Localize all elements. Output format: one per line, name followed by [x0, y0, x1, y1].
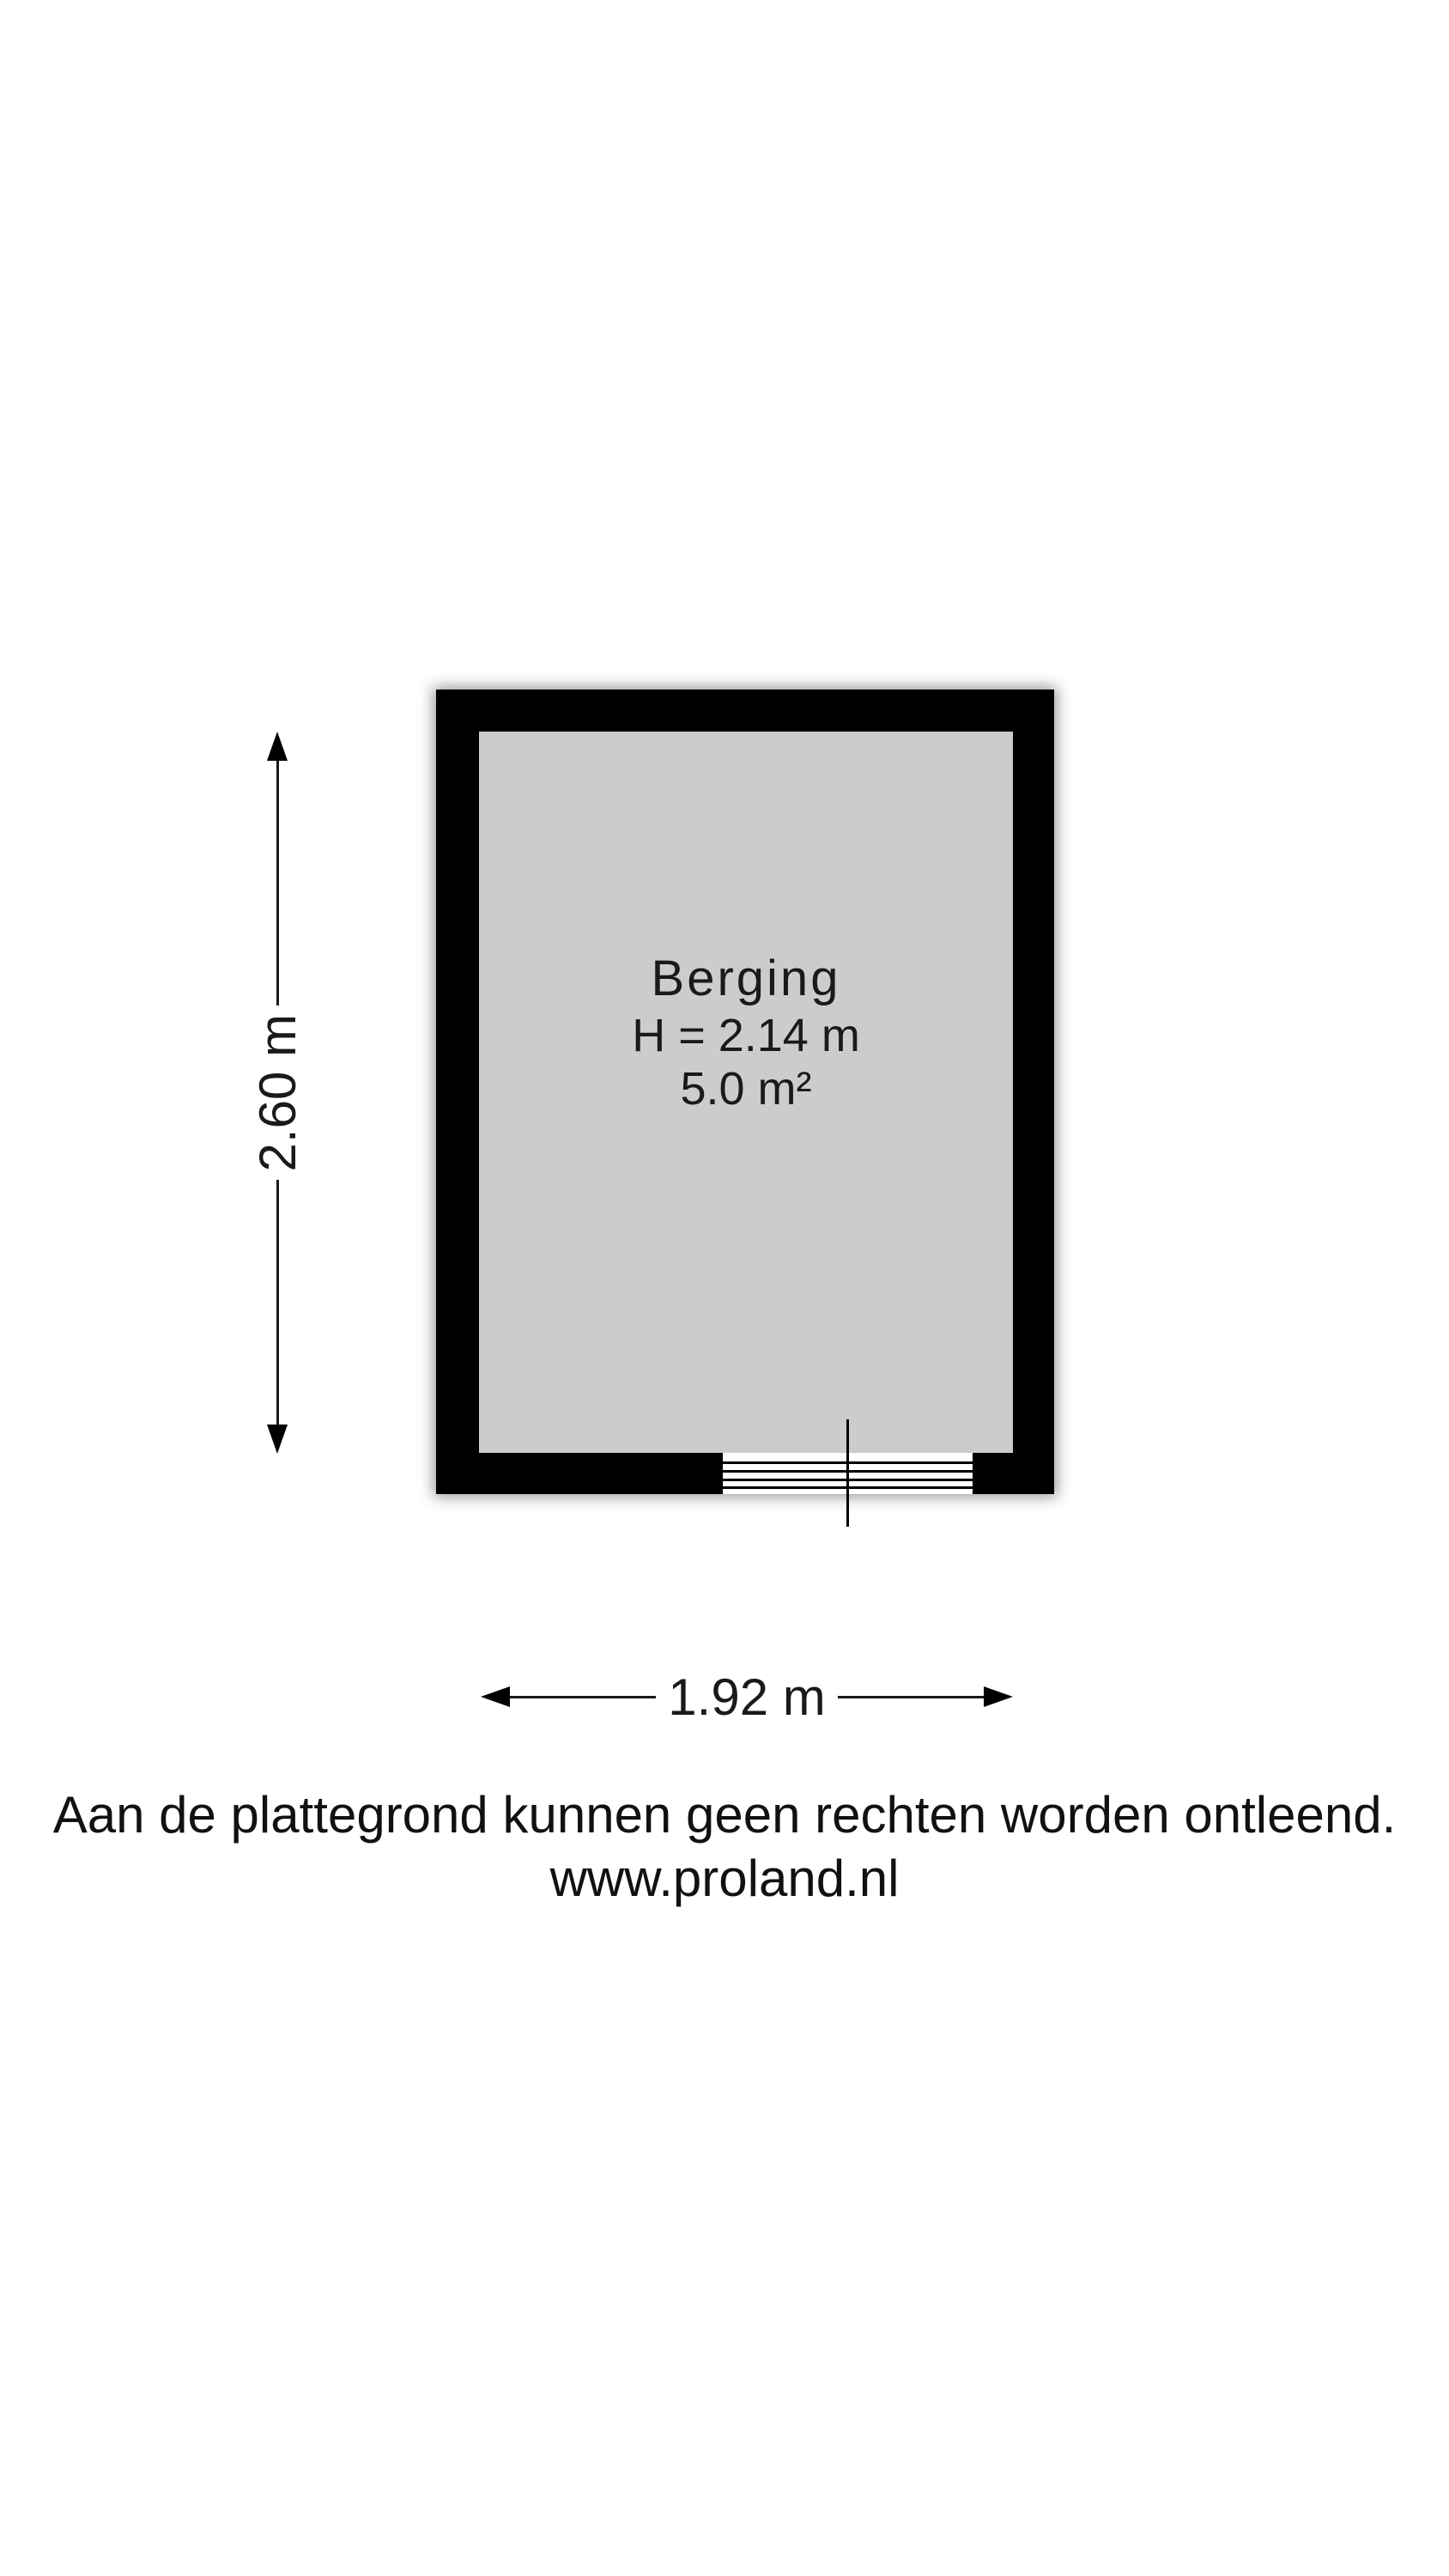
website-text: www.proland.nl — [0, 1847, 1449, 1911]
arrowhead-up-icon — [267, 732, 288, 761]
dimension-horizontal-label: 1.92 m — [668, 1668, 825, 1727]
dimension-vertical-label: 2.60 m — [248, 1014, 307, 1171]
floorplan-canvas: Berging H = 2.14 m 5.0 m² 2.60 m 1.92 m … — [0, 0, 1449, 2576]
door-centerline — [846, 1419, 849, 1527]
dimension-line — [276, 761, 279, 1005]
footer: Aan de plattegrond kunnen geen rechten w… — [0, 1783, 1449, 1911]
room-height-label: H = 2.14 m — [479, 1009, 1013, 1062]
arrowhead-right-icon — [984, 1686, 1013, 1707]
dimension-line — [510, 1696, 656, 1698]
dimension-horizontal: 1.92 m — [481, 1666, 1013, 1728]
arrowhead-left-icon — [481, 1686, 510, 1707]
dimension-line — [276, 1180, 279, 1425]
room-area-label: 5.0 m² — [479, 1062, 1013, 1115]
arrowhead-down-icon — [267, 1425, 288, 1454]
disclaimer-text: Aan de plattegrond kunnen geen rechten w… — [0, 1783, 1449, 1847]
dimension-vertical: 2.60 m — [262, 732, 293, 1454]
room-walls: Berging H = 2.14 m 5.0 m² — [436, 690, 1054, 1494]
room-name-label: Berging — [479, 949, 1013, 1009]
dimension-line — [838, 1696, 984, 1698]
room-label: Berging H = 2.14 m 5.0 m² — [479, 949, 1013, 1115]
